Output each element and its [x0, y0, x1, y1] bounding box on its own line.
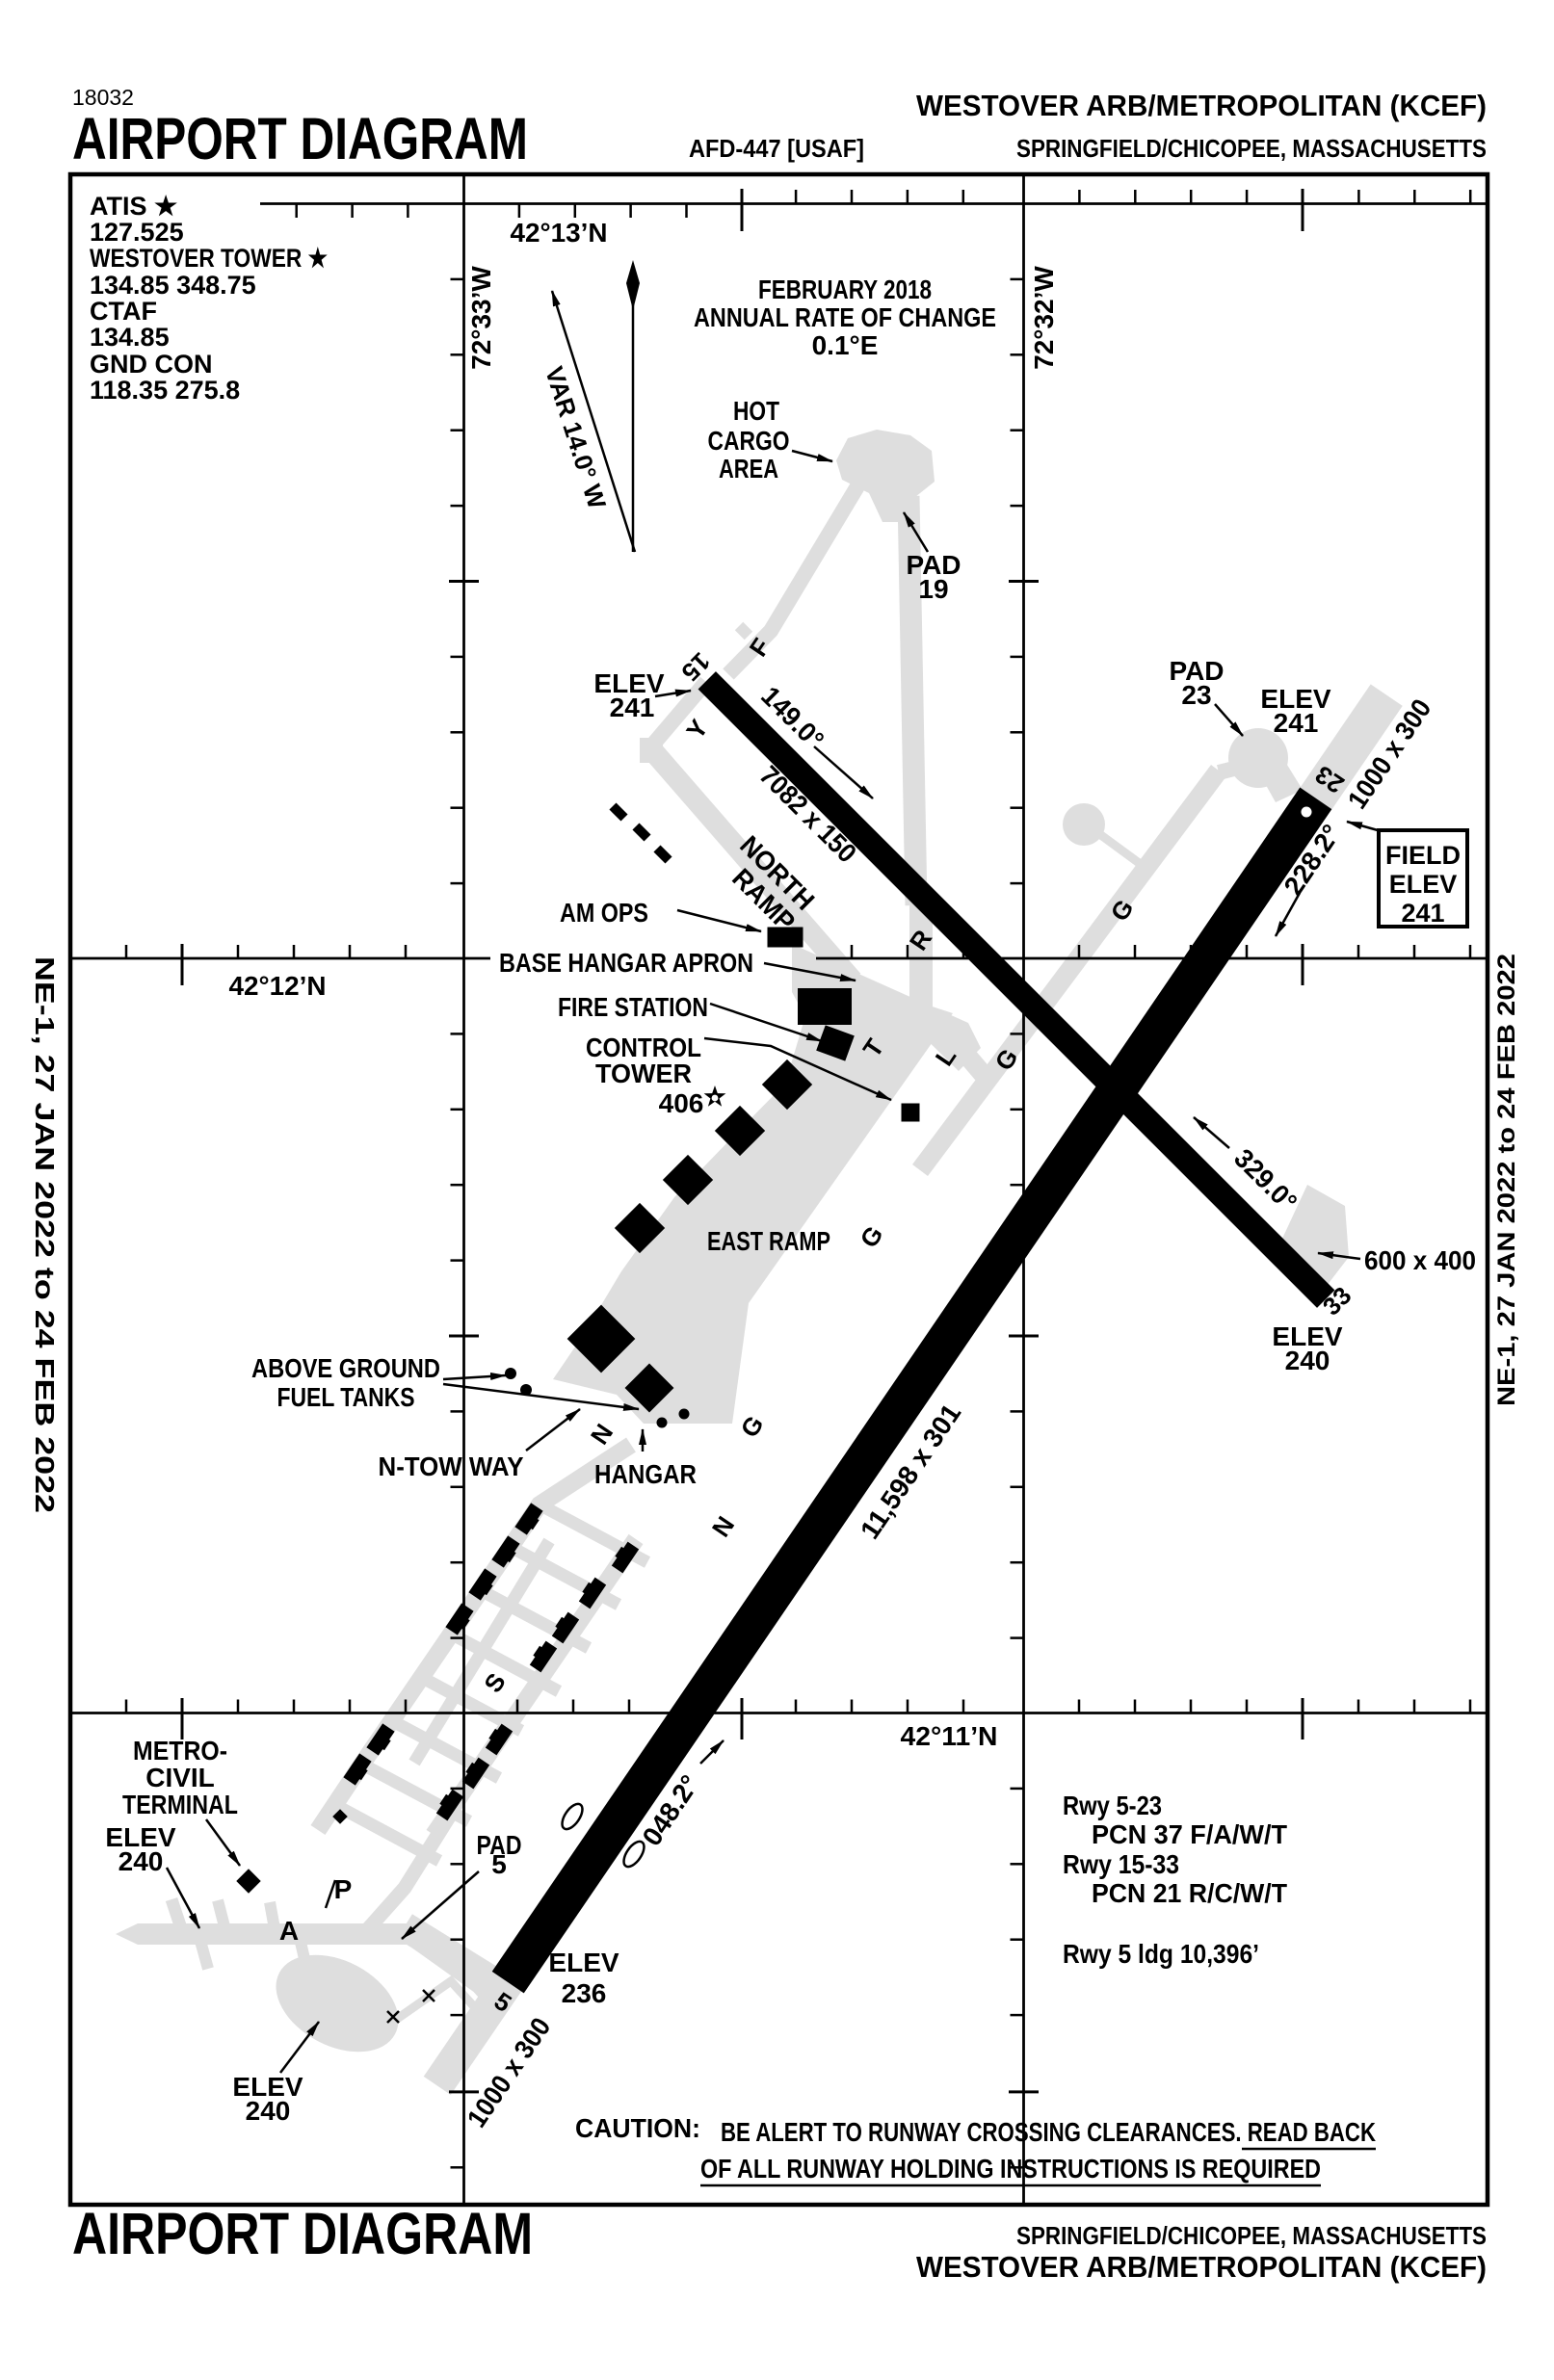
- svg-text:127.525: 127.525: [90, 218, 184, 247]
- svg-text:AIRPORT DIAGRAM: AIRPORT DIAGRAM: [72, 2201, 533, 2266]
- svg-text:CAUTION:: CAUTION:: [575, 2113, 700, 2143]
- svg-text:118.35 275.8: 118.35 275.8: [90, 376, 240, 405]
- svg-text:0.1°E: 0.1°E: [812, 330, 879, 360]
- svg-text:PCN 21 R/C/W/T: PCN 21 R/C/W/T: [1092, 1878, 1287, 1908]
- svg-text:240: 240: [1285, 1346, 1330, 1375]
- svg-text:GND CON: GND CON: [90, 350, 213, 379]
- svg-text:236: 236: [562, 1978, 607, 2008]
- svg-text:ELEV: ELEV: [1389, 870, 1458, 899]
- svg-text:AIRPORT DIAGRAM: AIRPORT DIAGRAM: [72, 106, 528, 171]
- svg-text:240: 240: [119, 1846, 164, 1876]
- svg-text:HOT: HOT: [733, 396, 779, 426]
- svg-text:BASE HANGAR APRON: BASE HANGAR APRON: [499, 948, 753, 978]
- svg-text:134.85: 134.85: [90, 323, 170, 352]
- svg-text:Rwy 5-23: Rwy 5-23: [1063, 1791, 1162, 1820]
- svg-text:SPRINGFIELD/CHICOPEE, MASSACHU: SPRINGFIELD/CHICOPEE, MASSACHUSETTS: [1016, 2221, 1487, 2250]
- svg-text:CTAF: CTAF: [90, 297, 157, 326]
- svg-text:AM OPS: AM OPS: [560, 898, 648, 928]
- svg-text:ABOVE GROUND: ABOVE GROUND: [251, 1353, 440, 1383]
- svg-text:406: 406: [659, 1088, 704, 1118]
- svg-text:72°32’W: 72°32’W: [1029, 266, 1059, 370]
- svg-text:WESTOVER TOWER ★: WESTOVER TOWER ★: [90, 244, 328, 273]
- svg-text:P: P: [334, 1874, 353, 1904]
- svg-text:19: 19: [918, 574, 948, 604]
- svg-text:A: A: [279, 1916, 299, 1946]
- svg-text:WESTOVER ARB/METROPOLITAN (: WESTOVER ARB/METROPOLITAN (KCEF): [916, 2250, 1487, 2284]
- svg-text:5: 5: [491, 1849, 507, 1879]
- svg-text:FEBRUARY 2018: FEBRUARY 2018: [758, 275, 932, 304]
- svg-text:FIRE STATION: FIRE STATION: [558, 992, 708, 1022]
- svg-text:241: 241: [610, 693, 655, 722]
- svg-text:42°13’N: 42°13’N: [511, 218, 608, 248]
- svg-text:600 x 400: 600 x 400: [1364, 1245, 1476, 1275]
- svg-text:ATIS ★: ATIS ★: [90, 192, 177, 221]
- svg-text:Rwy 5 ldg 10,396’: Rwy 5 ldg 10,396’: [1063, 1939, 1259, 1969]
- svg-text:CIVIL: CIVIL: [145, 1763, 215, 1792]
- svg-text:EAST RAMP: EAST RAMP: [707, 1226, 830, 1256]
- svg-text:ELEV: ELEV: [548, 1948, 619, 1977]
- svg-text:Rwy 15-33: Rwy 15-33: [1063, 1849, 1179, 1879]
- svg-text:PCN 37 F/A/W/T: PCN 37 F/A/W/T: [1092, 1819, 1287, 1849]
- svg-text:240: 240: [246, 2096, 291, 2126]
- svg-text:NE-1, 27 JAN 2022 to 24 FEB: NE-1, 27 JAN 2022 to 24 FEB 2022: [1493, 954, 1520, 1406]
- svg-text:TOWER: TOWER: [595, 1059, 692, 1088]
- svg-text:NE-1, 27 JAN 2022 to 24 FEB: NE-1, 27 JAN 2022 to 24 FEB 2022: [30, 956, 60, 1513]
- svg-text:TERMINAL: TERMINAL: [122, 1790, 238, 1819]
- svg-text:FIELD: FIELD: [1385, 841, 1461, 870]
- svg-text:WESTOVER ARB/METROPOLITAN (: WESTOVER ARB/METROPOLITAN (KCEF): [916, 89, 1487, 122]
- svg-text:SPRINGFIELD/CHICOPEE, MASSACHU: SPRINGFIELD/CHICOPEE, MASSACHUSETTS: [1016, 134, 1487, 163]
- svg-text:AREA: AREA: [719, 454, 778, 484]
- svg-text:HANGAR: HANGAR: [594, 1459, 697, 1489]
- svg-text:OF ALL RUNWAY HOLDING INSTRUCT: OF ALL RUNWAY HOLDING INSTRUCTIONS IS RE…: [700, 2154, 1321, 2184]
- svg-text:241: 241: [1274, 708, 1319, 738]
- svg-text:42°11’N: 42°11’N: [901, 1721, 998, 1751]
- svg-text:72°33’W: 72°33’W: [466, 266, 496, 370]
- svg-text:23: 23: [1181, 680, 1211, 710]
- svg-text:CARGO: CARGO: [708, 426, 790, 456]
- svg-text:BE ALERT TO RUNWAY CROSSING CL: BE ALERT TO RUNWAY CROSSING CLEARANCES. …: [721, 2117, 1376, 2147]
- svg-text:AFD-447 [USAF]: AFD-447 [USAF]: [689, 134, 864, 163]
- svg-text:ANNUAL RATE OF CHANGE: ANNUAL RATE OF CHANGE: [694, 302, 996, 332]
- svg-text:FUEL TANKS: FUEL TANKS: [277, 1382, 415, 1412]
- svg-text:METRO-: METRO-: [133, 1736, 227, 1765]
- svg-text:N-TOW WAY: N-TOW WAY: [379, 1452, 524, 1481]
- svg-text:241: 241: [1401, 899, 1444, 928]
- svg-text:134.85 348.75: 134.85 348.75: [90, 271, 256, 300]
- svg-text:42°12’N: 42°12’N: [229, 971, 327, 1001]
